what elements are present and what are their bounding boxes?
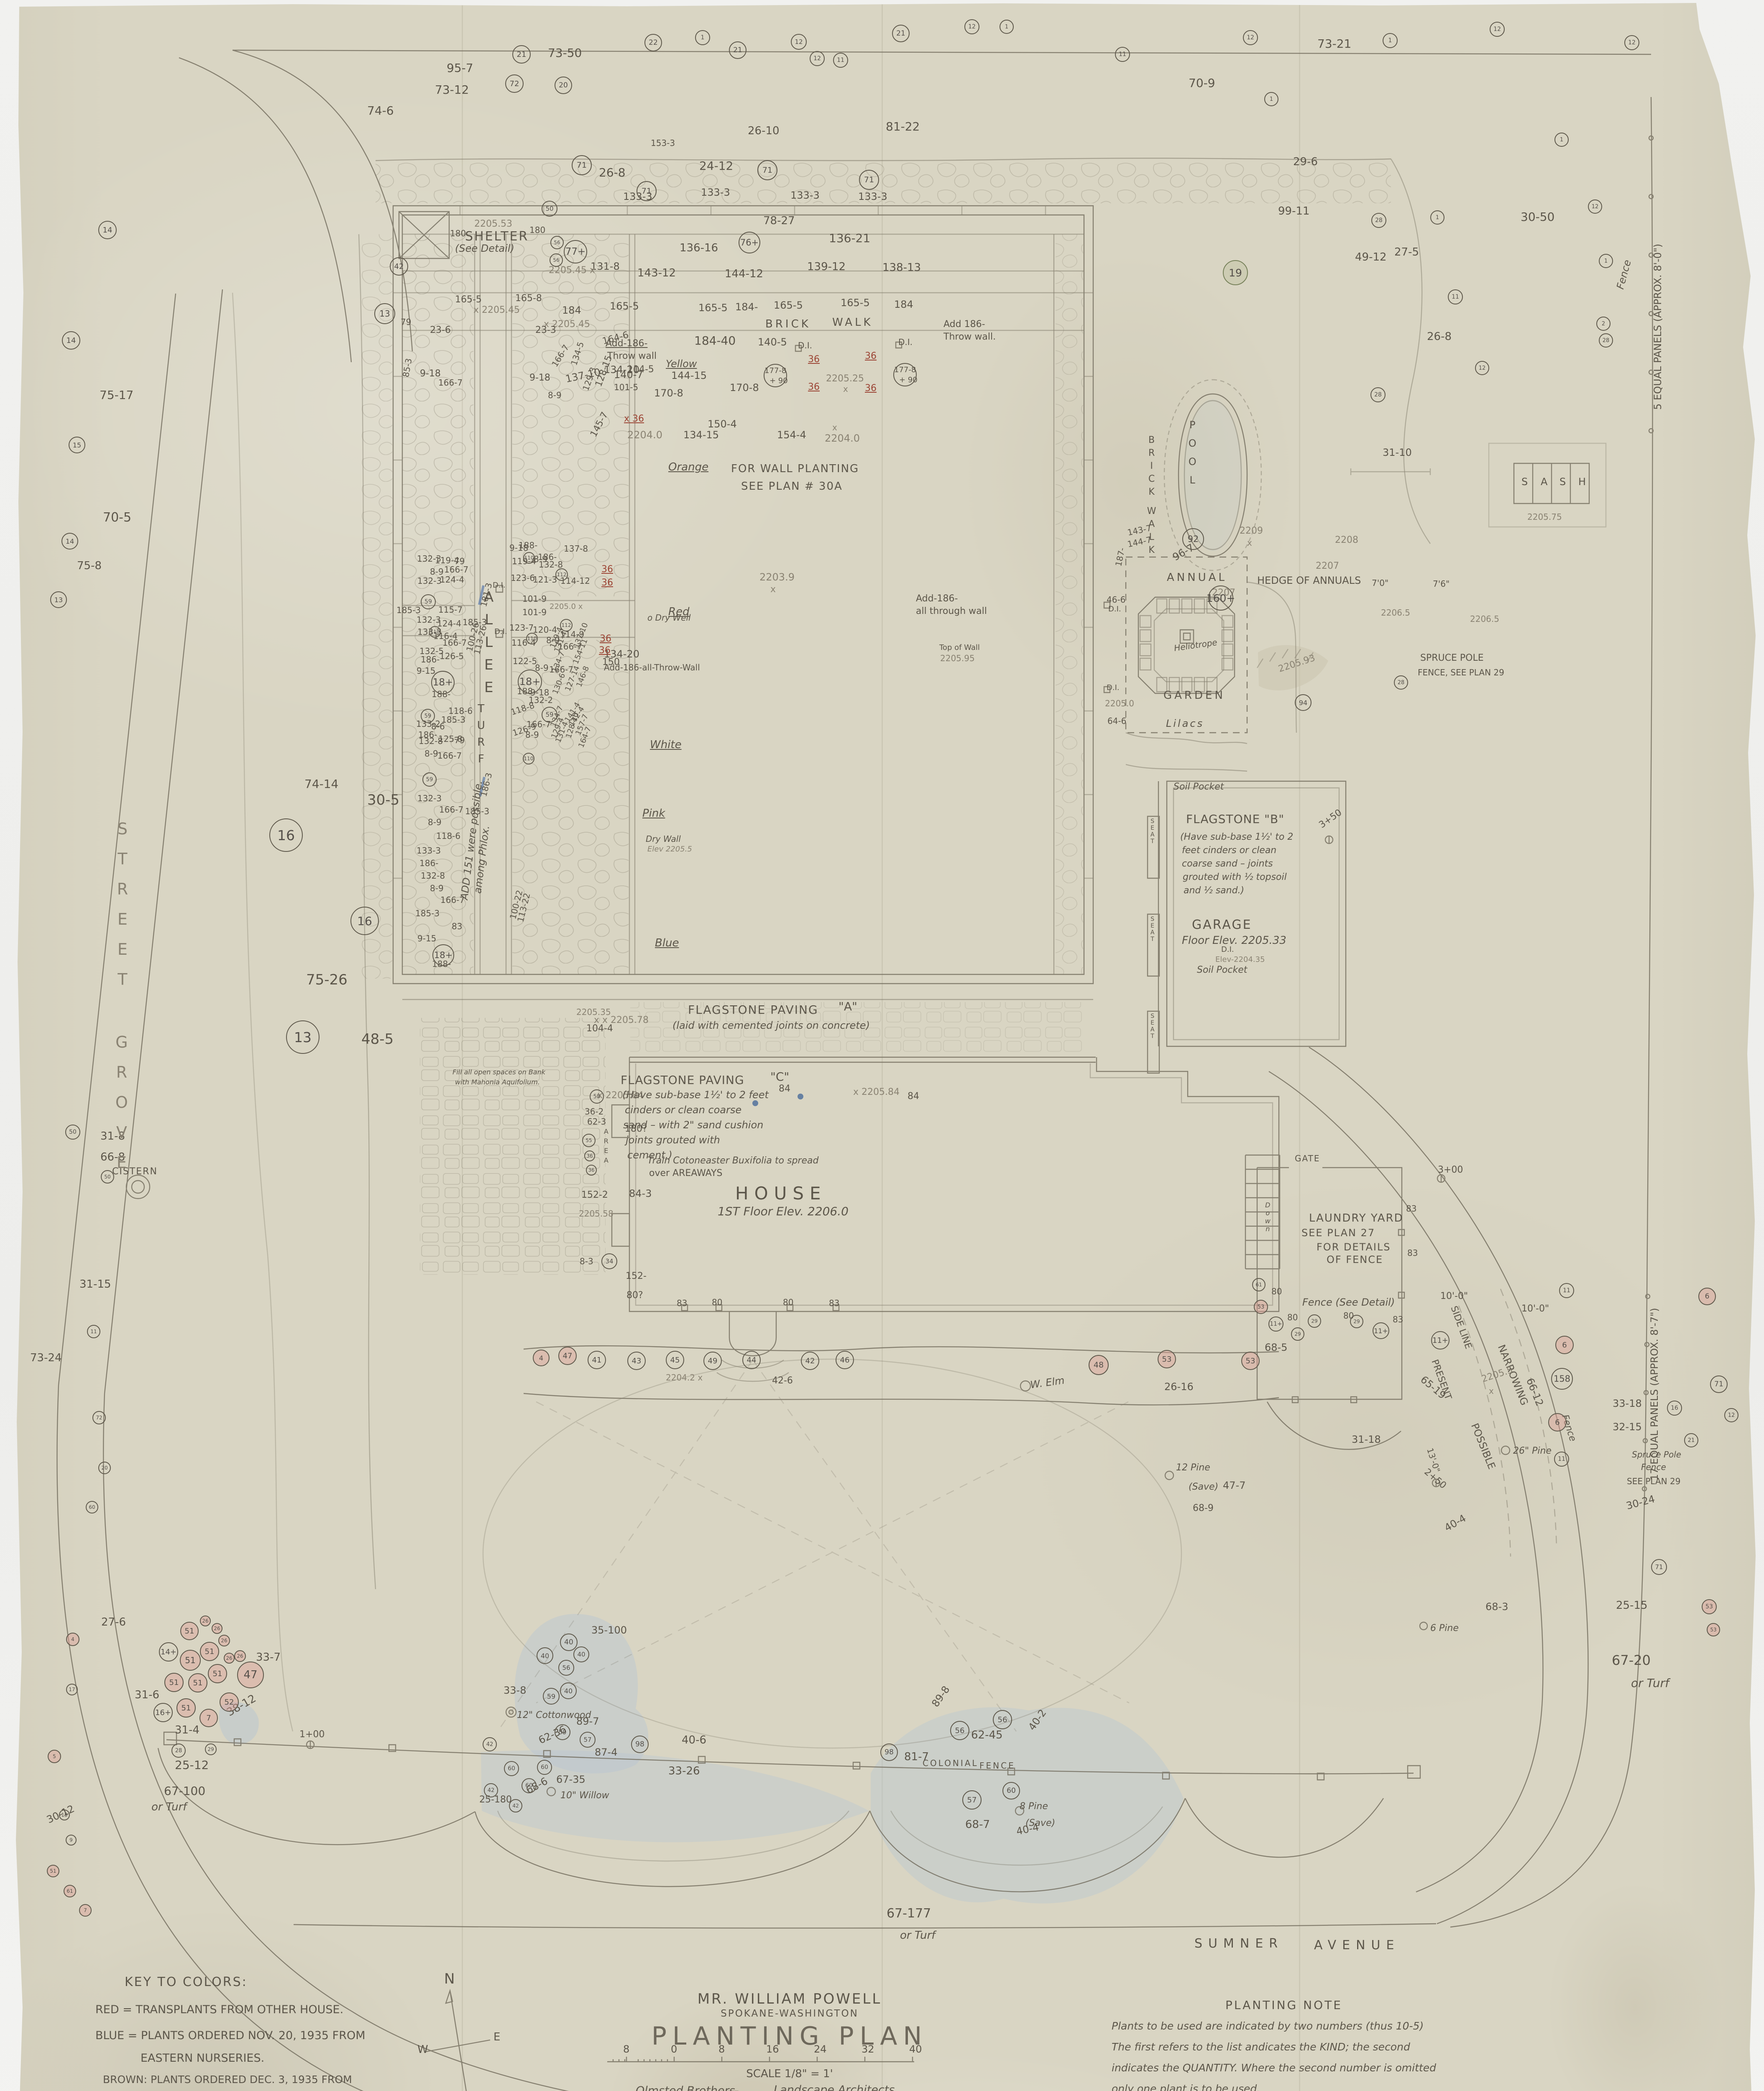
tree-circle: 158 (1551, 1368, 1573, 1390)
scale-number: 40 (909, 2043, 922, 2055)
tree-circle: 56 (993, 1710, 1012, 1729)
tree-circle: 71 (637, 181, 657, 201)
tree-circle: 28 (1370, 387, 1386, 402)
firm-name: Olmsted Brothers (636, 2084, 735, 2091)
tree-circle: 50 (542, 201, 557, 217)
tree-circle: 6 (1698, 1288, 1716, 1305)
tree-circle: 160+ (1208, 585, 1233, 611)
tree-circle: 40 (560, 1682, 577, 1699)
tree-circle: 15 (69, 437, 85, 453)
tree-circle: 16+ (153, 1703, 173, 1722)
tree-circle: 21 (1684, 1433, 1698, 1447)
tree-circle: 56 (558, 1660, 574, 1676)
tree-circle: 51 (188, 1673, 207, 1692)
tree-circle: 12 (964, 19, 979, 34)
tree-circle: 12 (1490, 22, 1505, 37)
tree-circle: 60 (504, 1761, 519, 1776)
tree-circle: 21 (729, 41, 747, 59)
tree-circle: 61 (64, 1885, 76, 1897)
tree-circle: 26 (224, 1653, 235, 1664)
scale-number: 8 (623, 2043, 629, 2055)
tree-circle: 1 (1383, 33, 1398, 48)
compass-west-label: W (417, 2043, 428, 2056)
tree-circle: 1 (1599, 254, 1613, 268)
tree-circle: 51 (164, 1673, 184, 1692)
tree-circle: 51 (180, 1650, 201, 1671)
tree-circle: 11 (1448, 289, 1463, 304)
tree-circle: 53 (1707, 1623, 1720, 1636)
tree-circle: 71 (572, 155, 592, 175)
tree-circle: 1 (1430, 210, 1444, 225)
tree-circle: 44 (742, 1351, 761, 1369)
tree-circle: 110 (526, 633, 538, 644)
tree-circle: 59 (421, 709, 435, 723)
tree-circle: 1 (695, 30, 710, 45)
tree-circle: 6 (1548, 1413, 1567, 1431)
tree-circle: 6 (1555, 1336, 1574, 1354)
tree-circle: 42 (509, 1799, 522, 1812)
tree-circle: 12 (1624, 35, 1639, 50)
tree-circle: 42 (801, 1352, 819, 1370)
client-name: MR. WILLIAM POWELL (698, 1991, 882, 2007)
tree-circle: 29 (1291, 1327, 1304, 1341)
tree-circle: 59 (543, 1688, 560, 1705)
tree-circle: 57 (962, 1790, 982, 1810)
tree-circle: 53 (1702, 1599, 1717, 1614)
tree-circle: 16 (269, 818, 303, 852)
tree-circle: 98 (631, 1736, 649, 1753)
tree-circle: 14 (98, 221, 117, 239)
tree-circle: 77+ (564, 240, 587, 263)
tree-circle: 56 (550, 253, 563, 267)
tree-circle: 42 (484, 1783, 498, 1797)
tree-circle: 50 (65, 1125, 80, 1140)
tree-circle: 16 (350, 907, 379, 935)
tree-circle: 14+ (159, 1642, 178, 1662)
tree-circle: 1 (1264, 92, 1278, 106)
planting-note-line: The first refers to the list andicates t… (1112, 2041, 1410, 2053)
tree-circle: 13 (286, 1020, 320, 1054)
tree-circle: 11 (1115, 47, 1130, 62)
scale-number: 32 (862, 2043, 874, 2055)
tree-circle: 18+ (432, 944, 454, 966)
tree-circle: 1 (1000, 20, 1014, 34)
tree-circle: 58 (590, 1089, 604, 1104)
tree-circle: 26 (218, 1635, 230, 1646)
tree-circle: 16 (1667, 1401, 1682, 1416)
tree-circle: 92 (1182, 528, 1204, 550)
tree-circle: 11+ (1431, 1331, 1450, 1350)
key-entry-blue2: EASTERN NURSERIES. (141, 2052, 264, 2065)
tree-circle: 9 (66, 1835, 77, 1846)
tree-circle: 21 (512, 45, 531, 64)
tree-circle: 12 (791, 34, 807, 50)
tree-circle: 98 (880, 1743, 898, 1761)
tree-circle: 1 (1554, 133, 1569, 147)
tree-circle: 110 (523, 753, 534, 764)
scanned-sheet-page: { "sheet": { "client": "MR. WILLIAM POWE… (0, 0, 1764, 2091)
tree-circle: 40 (537, 1647, 553, 1664)
tree-circle: 12 (1724, 1408, 1738, 1422)
tree-circle: 28 (171, 1743, 186, 1758)
planting-note-line: only one plant is to be used. (1112, 2083, 1260, 2091)
tree-circle: 72 (505, 74, 524, 93)
tree-circle: 7 (79, 1904, 92, 1917)
tree-circle: 59 (421, 594, 436, 609)
tree-circle: 50 (101, 1170, 114, 1184)
tree-circle: 20 (555, 77, 572, 94)
tree-circle: 12 (1243, 30, 1258, 45)
tree-circle: 13 (50, 591, 67, 608)
key-entry-blue: BLUE = PLANTS ORDERED NOV. 20, 1935 FROM (95, 2029, 366, 2042)
tree-circle: 42 (390, 257, 408, 276)
scale-number: 16 (766, 2043, 779, 2055)
sheet-title: PLANTING PLAN (652, 2022, 928, 2051)
compass-north-label: N (444, 1971, 455, 1987)
tree-circle (893, 363, 917, 386)
tree-circle: 46 (836, 1351, 854, 1369)
tree-circle: 28 (1371, 213, 1386, 228)
tree-circle: 14 (62, 331, 80, 350)
tree-circle: 76+ (739, 232, 760, 253)
tree-circle: 11 (1559, 1283, 1574, 1298)
tree-circle: 21 (892, 25, 910, 42)
tree-circle: 51 (208, 1664, 227, 1683)
tree-circle: 49 (703, 1352, 722, 1370)
tree-circle: 4 (66, 1633, 79, 1646)
tree-circle: 71 (1710, 1375, 1728, 1393)
tree-circle: 40 (560, 1633, 578, 1651)
tree-circle: 17 (66, 1684, 78, 1695)
tree-circle: 60 (86, 1501, 98, 1513)
tree-circle: 60 (537, 1760, 552, 1775)
tree-circle: 18+ (431, 671, 455, 694)
tree-circle: 11 (87, 1325, 100, 1338)
tree-circle: 47 (558, 1347, 577, 1365)
tree-circle: 28 (1394, 675, 1408, 690)
drawing-sheet: 74-695-773-1273-5026-824-12153-3133-3133… (0, 0, 1764, 2091)
tree-circle: 14 (61, 533, 78, 550)
tree-circle: 40 (573, 1646, 589, 1662)
tree-circle: 110 (523, 552, 535, 564)
tree-circle: 112 (555, 568, 568, 581)
tree-circle: 28 (1599, 333, 1613, 348)
tree-circle: 12 (1475, 361, 1489, 375)
tree-circle: 20 (98, 1462, 111, 1474)
tree-circle: 36 (584, 1150, 595, 1161)
planting-note-heading: PLANTING NOTE (1225, 1998, 1342, 2012)
tree-circle: 45 (666, 1351, 684, 1369)
tree-circle: 112 (560, 619, 573, 631)
scale-note: SCALE 1/8" = 1' (746, 2068, 833, 2080)
tree-circle: 55 (582, 1134, 596, 1147)
tree-circle: 53 (1158, 1350, 1176, 1368)
scale-number: 0 (671, 2043, 677, 2055)
firm-role: Landscape Architects (774, 2083, 895, 2091)
firm-dash: — (728, 2084, 739, 2091)
tree-circle: 12 (810, 51, 825, 66)
tree-circle: 71 (757, 160, 777, 180)
scale-number: 24 (814, 2043, 827, 2055)
tree-circle: 53 (1254, 1300, 1268, 1314)
tree-circle: 59 (542, 707, 557, 723)
tree-circle: 110 (429, 626, 441, 638)
key-entry-brown: BROWN: PLANTS ORDERED DEC. 3, 1935 FROM (103, 2073, 352, 2086)
tree-circle: 72 (92, 1411, 106, 1424)
tree-circle: 11+ (1373, 1322, 1389, 1339)
tree-circle: 61 (1252, 1278, 1265, 1291)
tree-circle: 43 (627, 1352, 646, 1370)
tree-circle: 15 (59, 1810, 70, 1820)
tree-circle: 2 (1596, 317, 1611, 331)
tree-circle: 29 (1308, 1314, 1321, 1328)
tree-circle: 7 (199, 1709, 218, 1727)
tree-circle: 57 (580, 1732, 596, 1748)
tree-circle: 56 (550, 236, 564, 249)
tree-circle: 18+ (518, 670, 542, 694)
tree-circle: 60 (1002, 1782, 1020, 1800)
tree-circle: 51 (180, 1622, 199, 1640)
tree-circle: 94 (1295, 694, 1311, 711)
tree-circle: 59 (422, 772, 437, 787)
tree-circle: 26 (234, 1650, 246, 1662)
tree-circle: 48 (1089, 1355, 1109, 1375)
tree-circle: 51 (47, 1865, 59, 1877)
tree-circle: 5 (48, 1750, 61, 1763)
tree-circle: 12 (1588, 199, 1602, 214)
scale-number: 8 (718, 2043, 725, 2055)
tree-circle: 26 (212, 1623, 222, 1634)
tree-circle: 4 (533, 1350, 550, 1366)
tree-circle: 19 (1223, 260, 1248, 285)
key-entry-red: RED = TRANSPLANTS FROM OTHER HOUSE. (95, 2003, 343, 2016)
circles-layer: 2172202212112121121121111211121271717171… (0, 0, 1764, 2091)
tree-circle: 13 (374, 303, 395, 324)
tree-circle: 11+ (1268, 1316, 1283, 1332)
tree-circle: 29 (205, 1743, 217, 1755)
tree-circle: 11 (1554, 1452, 1569, 1467)
tree-circle: 71 (1651, 1559, 1667, 1575)
tree-circle: 56 (950, 1721, 969, 1740)
tree-circle (764, 364, 787, 387)
tree-circle: 51 (200, 1642, 219, 1661)
client-location: SPOKANE-WASHINGTON (721, 2008, 859, 2019)
tree-circle: 59 (555, 1724, 570, 1740)
key-heading: KEY TO COLORS: (125, 1975, 248, 1989)
tree-circle: 51 (176, 1698, 196, 1718)
tree-circle: 34 (601, 1253, 617, 1269)
planting-note-line: Plants to be used are indicated by two n… (1112, 2020, 1424, 2032)
planting-note-line: indicates the QUANTITY. Where the second… (1112, 2062, 1436, 2074)
tree-circle: 22 (644, 34, 662, 51)
tree-circle: 47 (237, 1662, 264, 1688)
compass-east-label: E (493, 2031, 500, 2043)
tree-circle: 11 (833, 53, 848, 68)
tree-circle: 52 (220, 1692, 239, 1712)
tree-circle: 29 (1350, 1315, 1363, 1328)
tree-circle: 71 (859, 170, 879, 190)
tree-circle: 41 (588, 1351, 606, 1369)
tree-circle: 42 (483, 1737, 497, 1751)
tree-circle: 53 (1241, 1352, 1260, 1370)
tree-circle: 26 (200, 1616, 211, 1626)
tree-circle: 60 (522, 1778, 537, 1793)
tree-circle: 36 (586, 1165, 597, 1176)
